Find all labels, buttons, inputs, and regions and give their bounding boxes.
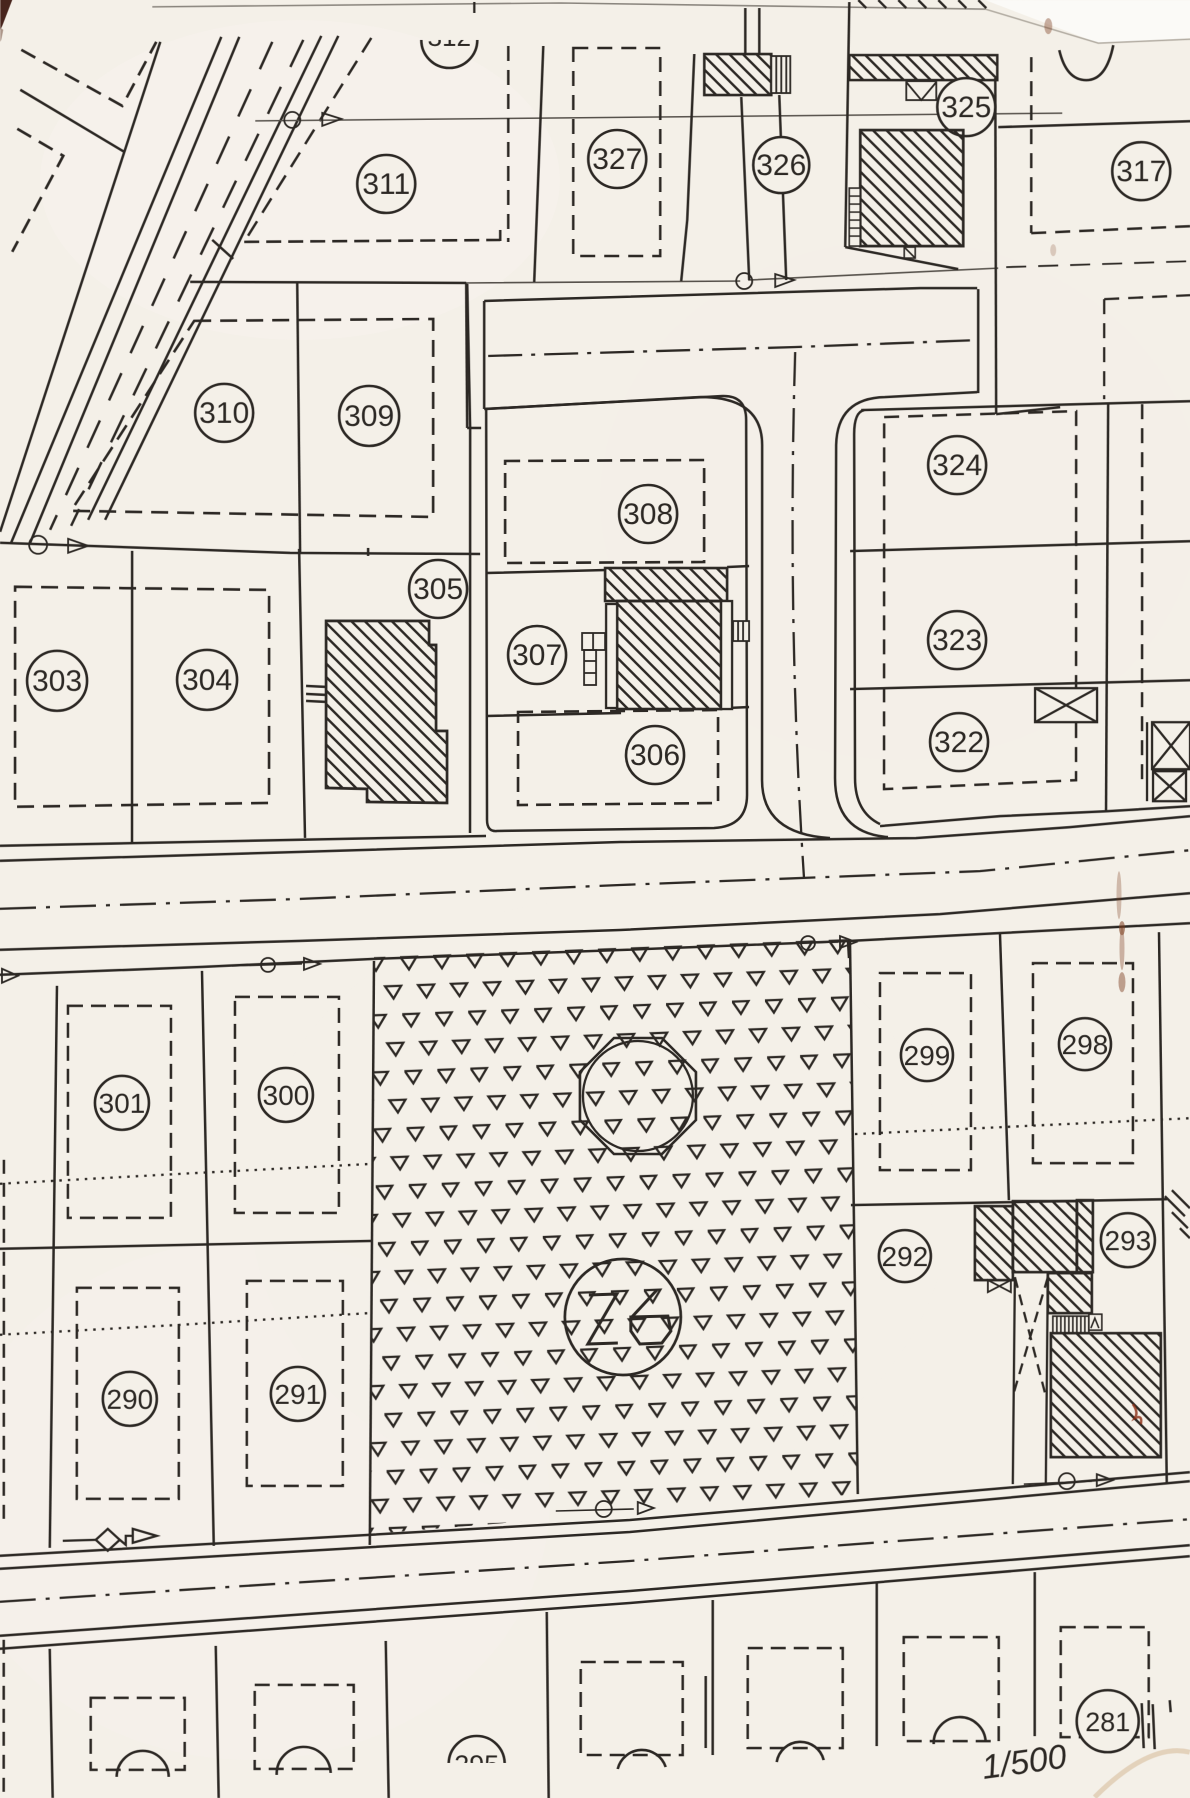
svg-text:325: 325 — [941, 91, 991, 124]
svg-text:299: 299 — [904, 1040, 951, 1071]
svg-text:307: 307 — [512, 639, 562, 672]
svg-text:281: 281 — [1085, 1707, 1130, 1737]
svg-text:311: 311 — [362, 168, 410, 201]
svg-text:317: 317 — [1116, 155, 1166, 188]
svg-text:293: 293 — [1105, 1225, 1152, 1256]
svg-text:326: 326 — [756, 149, 806, 182]
svg-text:305: 305 — [413, 573, 463, 606]
svg-text:322: 322 — [934, 726, 984, 759]
svg-text:290: 290 — [106, 1384, 153, 1415]
svg-text:323: 323 — [932, 624, 982, 657]
svg-text:306: 306 — [630, 739, 680, 772]
svg-text:324: 324 — [932, 449, 982, 482]
svg-text:303: 303 — [32, 665, 82, 698]
svg-text:304: 304 — [182, 664, 232, 697]
svg-text:310: 310 — [199, 397, 249, 430]
svg-text:292: 292 — [882, 1241, 929, 1272]
svg-text:327: 327 — [592, 143, 642, 176]
svg-text:301: 301 — [99, 1088, 146, 1119]
svg-text:298: 298 — [1062, 1029, 1109, 1060]
svg-text:291: 291 — [274, 1379, 321, 1410]
svg-text:309: 309 — [344, 400, 394, 433]
svg-text:308: 308 — [623, 498, 673, 531]
svg-text:300: 300 — [263, 1080, 310, 1111]
